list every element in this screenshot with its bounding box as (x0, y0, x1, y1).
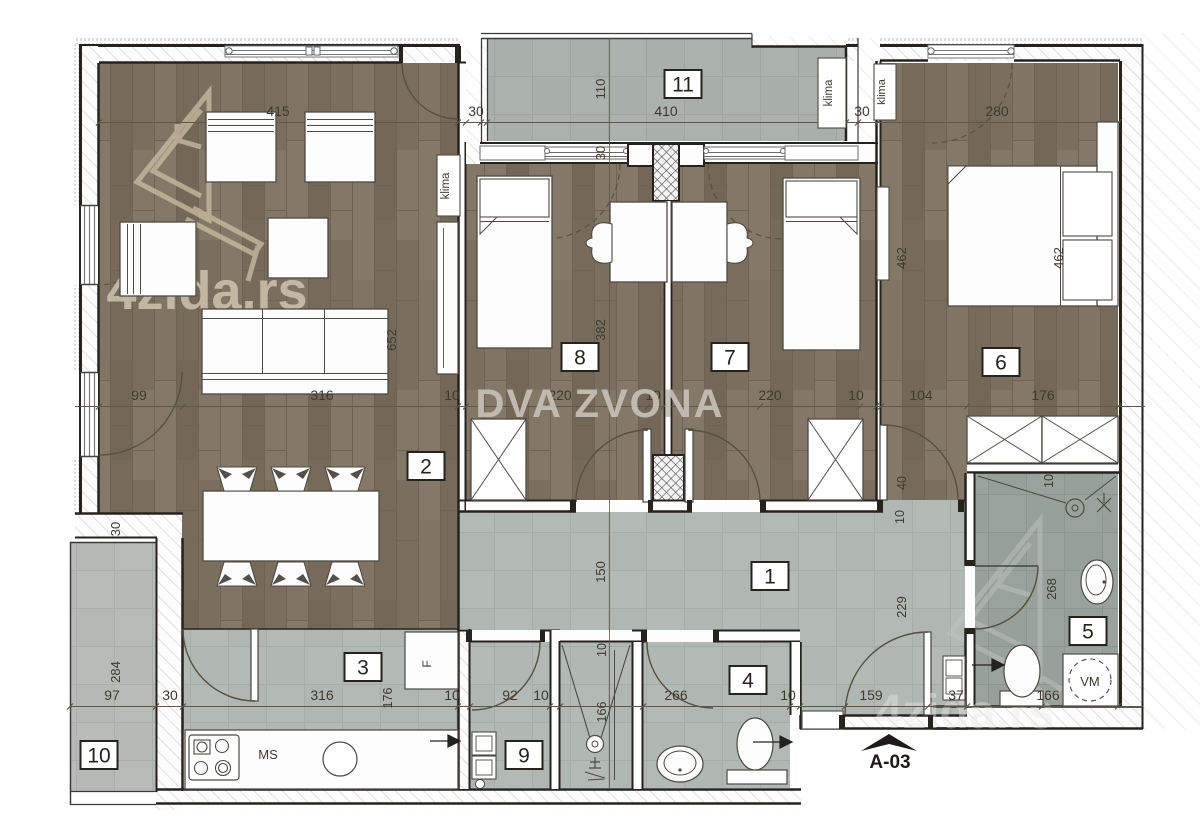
svg-text:10: 10 (780, 687, 796, 703)
svg-text:462: 462 (894, 247, 909, 269)
svg-text:10: 10 (595, 643, 609, 657)
svg-text:MS: MS (258, 747, 278, 762)
svg-text:10: 10 (893, 510, 907, 524)
svg-text:166: 166 (595, 702, 609, 723)
svg-text:klima: klima (440, 172, 452, 199)
svg-text:280: 280 (985, 103, 1009, 119)
svg-text:97: 97 (104, 687, 120, 703)
svg-text:104: 104 (909, 387, 933, 403)
svg-text:10: 10 (533, 687, 549, 703)
svg-text:30: 30 (593, 146, 608, 160)
svg-text:284: 284 (108, 661, 123, 683)
svg-text:159: 159 (859, 687, 883, 703)
svg-text:30: 30 (108, 522, 123, 536)
svg-text:462: 462 (1051, 247, 1066, 269)
svg-text:229: 229 (894, 596, 909, 618)
svg-text:VM: VM (1080, 674, 1100, 689)
svg-text:9: 9 (518, 745, 530, 768)
svg-text:5: 5 (1082, 621, 1094, 644)
svg-text:40: 40 (895, 476, 909, 490)
svg-text:150: 150 (593, 561, 608, 583)
svg-text:11: 11 (672, 74, 694, 97)
svg-text:klima: klima (823, 79, 835, 106)
svg-text:2: 2 (420, 456, 432, 479)
svg-text:10: 10 (444, 687, 460, 703)
svg-text:415: 415 (266, 103, 290, 119)
svg-text:410: 410 (654, 103, 678, 119)
svg-text:4: 4 (742, 670, 754, 693)
svg-text:176: 176 (381, 688, 395, 709)
svg-text:316: 316 (310, 387, 334, 403)
svg-text:A-03: A-03 (869, 752, 910, 773)
svg-text:10: 10 (87, 745, 110, 768)
svg-text:10: 10 (848, 387, 864, 403)
svg-text:176: 176 (1031, 387, 1055, 403)
svg-text:266: 266 (664, 687, 688, 703)
svg-text:166: 166 (1036, 687, 1060, 703)
svg-text:8: 8 (574, 347, 586, 370)
svg-text:37: 37 (948, 687, 964, 703)
svg-text:652: 652 (384, 329, 399, 351)
svg-text:382: 382 (593, 319, 608, 341)
svg-text:10: 10 (444, 387, 460, 403)
svg-text:30: 30 (162, 687, 178, 703)
svg-text:1: 1 (764, 566, 776, 589)
svg-text:30: 30 (468, 103, 484, 119)
svg-text:92: 92 (502, 687, 518, 703)
svg-text:7: 7 (724, 347, 736, 370)
svg-text:klima: klima (876, 78, 888, 105)
svg-text:99: 99 (131, 387, 147, 403)
svg-text:6: 6 (995, 352, 1007, 375)
svg-text:DVA ZVONA: DVA ZVONA (475, 382, 724, 426)
svg-text:220: 220 (758, 387, 782, 403)
svg-text:110: 110 (593, 79, 608, 100)
svg-text:30: 30 (854, 103, 870, 119)
svg-text:3: 3 (357, 657, 369, 680)
svg-text:10: 10 (1042, 474, 1056, 488)
svg-text:268: 268 (1044, 578, 1059, 600)
svg-text:316: 316 (310, 687, 334, 703)
svg-text:F: F (420, 660, 434, 667)
